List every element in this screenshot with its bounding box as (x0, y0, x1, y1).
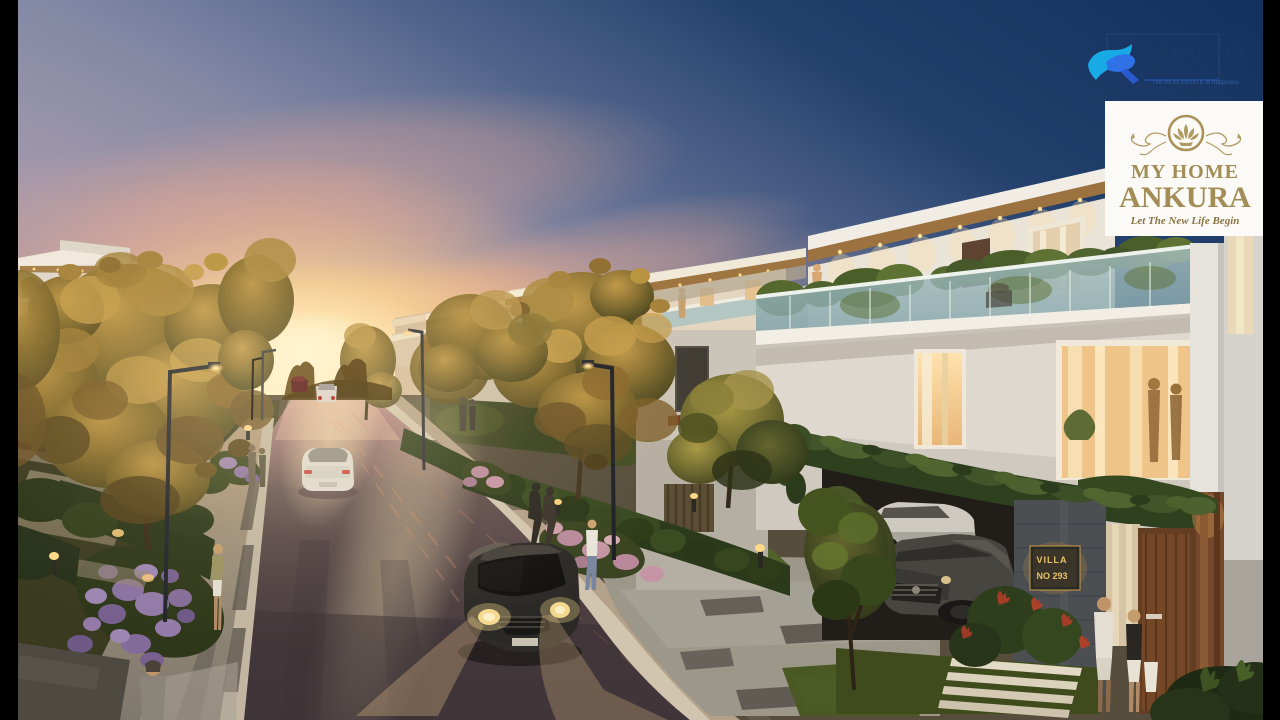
svg-text:The REAL ESTATE of happiness: The REAL ESTATE of happiness (1152, 80, 1239, 86)
svg-text:NO 293: NO 293 (1036, 571, 1067, 581)
svg-text:Let The New Life Begin: Let The New Life Begin (1130, 215, 1240, 227)
svg-text:MY HOME: MY HOME (1131, 161, 1239, 183)
svg-text:ANKURA: ANKURA (1119, 181, 1251, 214)
svg-text:VILLA: VILLA (1037, 555, 1068, 565)
